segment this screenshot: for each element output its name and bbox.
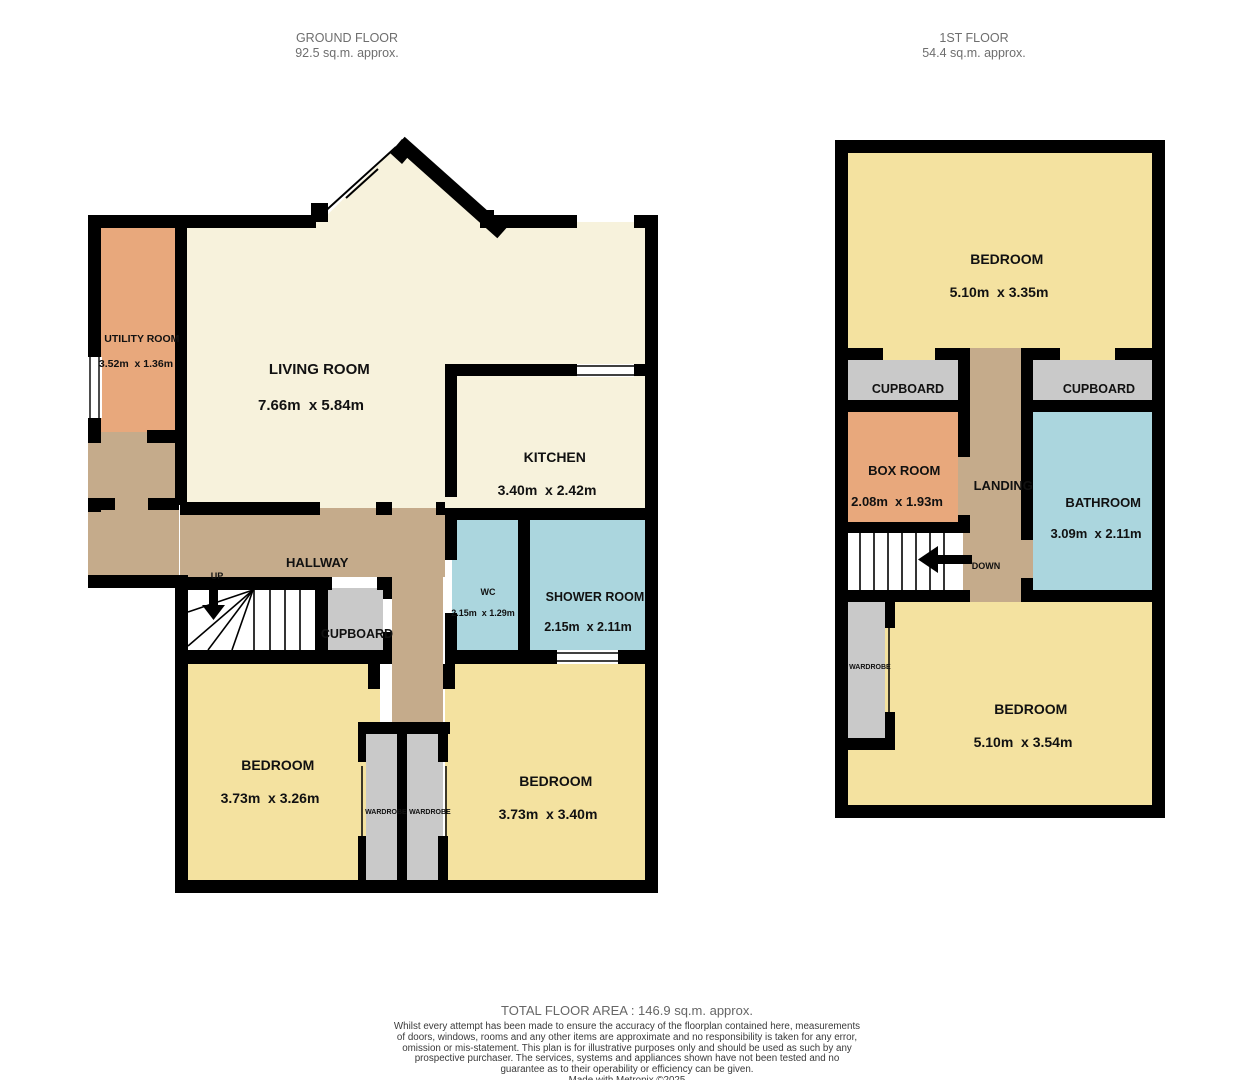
hallway-label: HALLWAY <box>272 539 349 586</box>
bedroom-left-label: BEDROOM 3.73m x 3.26m <box>221 740 320 841</box>
wc-label: WC 2.15m x 1.29m <box>451 576 515 641</box>
stairs-ground-floor <box>188 588 315 650</box>
side-door-opening-lower <box>88 512 102 575</box>
bathroom-door-gap <box>1021 540 1033 578</box>
landing-label: LANDING <box>959 462 1033 509</box>
ground-floor-area: 92.5 sq.m. approx. <box>295 46 399 61</box>
first-floor-area: 54.4 sq.m. approx. <box>922 46 1026 61</box>
total-floor-area: TOTAL FLOOR AREA : 146.9 sq.m. approx. <box>392 1003 862 1018</box>
disclaimer-text: Whilst every attempt has been made to en… <box>392 1022 862 1076</box>
footer: TOTAL FLOOR AREA : 146.9 sq.m. approx. W… <box>392 1003 862 1080</box>
kitchen-label: KITCHEN 3.40m x 2.42m <box>498 432 597 533</box>
stairs-down-label: DOWN <box>962 550 1001 582</box>
bedroom-top-label: BEDROOM 5.10m x 3.35m <box>950 234 1049 335</box>
utility-room-label: UTILITY ROOM 3.52m x 1.36m <box>93 320 180 396</box>
ground-floor-title: GROUND FLOOR <box>295 31 399 46</box>
wardrobe-right-label: WARDROBE <box>401 801 450 826</box>
side-door-opening-upper <box>88 443 102 498</box>
bedroom-bottom-label: BEDROOM 5.10m x 3.54m <box>974 684 1073 785</box>
shower-room-label: SHOWER ROOM 2.15m x 2.11m <box>532 575 645 665</box>
cupboard-left-door-gap <box>883 348 935 360</box>
first-floor-header: 1ST FLOOR 54.4 sq.m. approx. <box>922 31 1026 60</box>
wardrobe-left-label: WARDROBE <box>357 801 406 826</box>
cupboard-ground-label: CUPBOARD <box>307 612 393 657</box>
wardrobe-first-label: WARDROBE <box>841 656 890 681</box>
cupboard-right-label: CUPBOARD <box>1049 367 1135 412</box>
stairs-up-label: UP <box>201 560 224 592</box>
vestibule-lower-floor <box>95 502 179 579</box>
floorplan-canvas: GROUND FLOOR 92.5 sq.m. approx. 1ST FLOO… <box>0 0 1252 1080</box>
box-room-label: BOX ROOM 2.08m x 1.93m <box>851 447 943 541</box>
living-room-label: LIVING ROOM 7.66m x 5.84m <box>252 343 370 451</box>
bedroom-right-label: BEDROOM 3.73m x 3.40m <box>499 756 598 857</box>
ground-floor-header: GROUND FLOOR 92.5 sq.m. approx. <box>295 31 399 60</box>
corridor-floor <box>392 577 443 722</box>
cupboard-right-door-gap <box>1060 348 1115 360</box>
credit-text: Made with Metropix ©2025 <box>392 1076 862 1080</box>
first-floor-title: 1ST FLOOR <box>922 31 1026 46</box>
cupboard-left-label: CUPBOARD <box>858 367 944 412</box>
bathroom-label: BATHROOM 3.09m x 2.11m <box>1050 479 1141 573</box>
